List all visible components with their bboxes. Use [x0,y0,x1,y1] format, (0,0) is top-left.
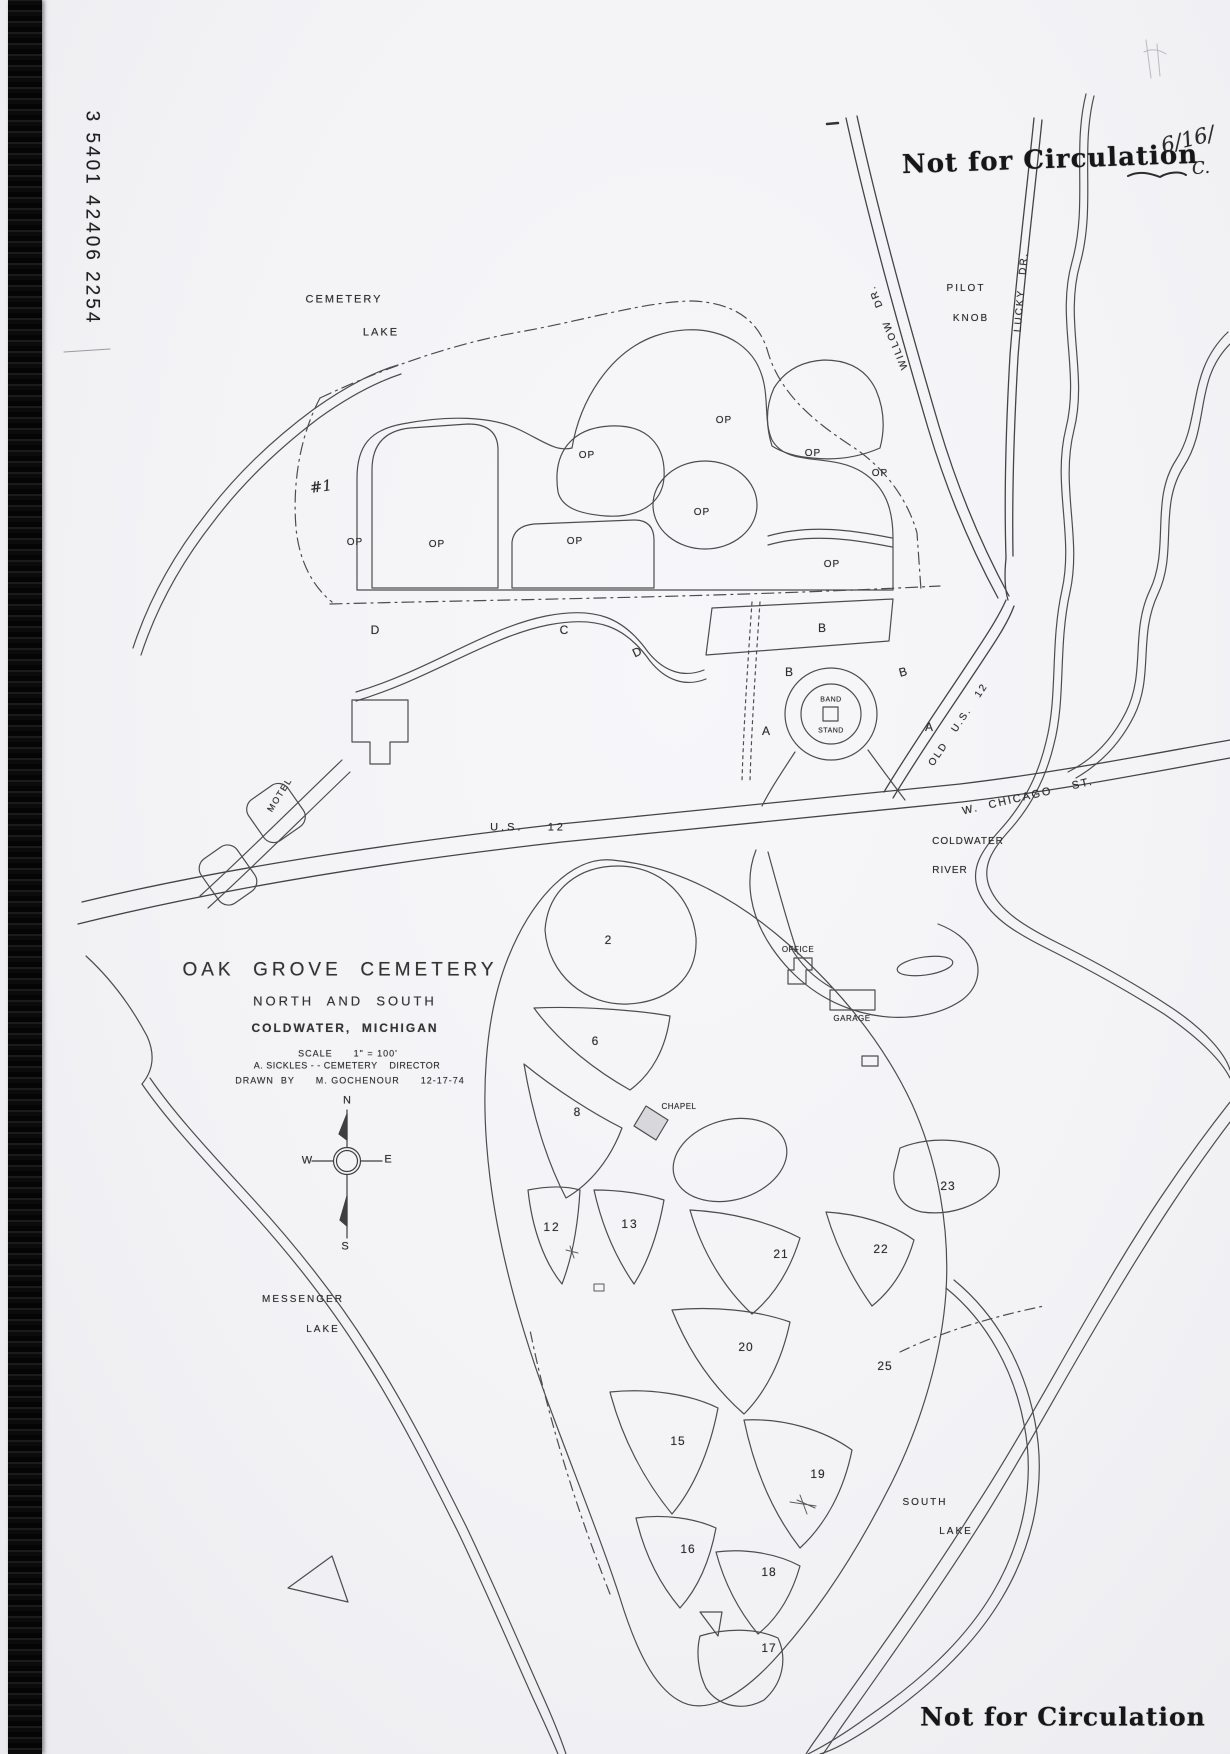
section-22: 22 [873,1243,888,1255]
section-15-outline [610,1391,718,1514]
compass-north-dart [339,1114,347,1140]
map-title: OAK GROVE CEMETERY [182,961,497,980]
south-lake-far-shore [806,1102,1230,1754]
compass-south-dart [340,1196,347,1226]
chapel-building [634,1106,668,1140]
south-lake-shoreline-inner [820,1280,1039,1754]
faint-pencil-marks [1144,40,1166,78]
coldwater-river-east-bank [987,96,1230,1070]
section-b-north: B [818,622,826,634]
section-18-outline [716,1551,800,1634]
section-b-west: B [785,666,793,678]
north-property-line-top [320,301,921,590]
op-block-left [372,424,498,588]
section-op-1: OP [716,416,732,426]
small-square-marker [594,1284,604,1291]
section-a-east: A [925,721,933,733]
a-road-dashed-east [750,602,760,780]
not-for-circulation-stamp-bottom: Not for Circulation [920,1705,1206,1730]
stray-dash [827,123,838,124]
us12-label: U.S. 12 [490,823,566,834]
coldwater-river-label-2: RIVER [932,866,968,876]
chapel-loop-road [663,1106,797,1215]
map-drawn-credit: DRAWN BY M. GOCHENOUR 12-17-74 [235,1077,465,1086]
map-director-credit: A. SICKLES - - CEMETERY DIRECTOR [254,1062,441,1071]
op-area-outer-road [357,330,893,590]
coldwater-river-west-bank [975,94,1230,1078]
section-op-7: OP [429,540,445,550]
section-op-6: OP [347,538,363,548]
compass-outer-circle [334,1148,361,1175]
b-block-parallelogram [706,599,893,655]
section-op-5: OP [694,508,710,518]
band-stand-building [823,707,838,721]
op-block-egg [557,426,664,516]
section-a-west: A [762,725,770,737]
op-block-mid-lower [512,520,654,588]
section-op-9: OP [824,560,840,570]
motel-parking-sliver-1 [194,840,261,909]
op-block-oval [653,461,757,549]
garage-label: GARAGE [833,1015,870,1023]
section-8-outline [524,1064,622,1198]
cemetery-lake-shoreline-inner [141,374,401,655]
chapel-label: CHAPEL [661,1103,696,1111]
map-linework [0,0,1230,1754]
compass-e-label: E [384,1155,391,1166]
old-us12-road-west-edge [884,600,1006,792]
section-19-outline [744,1420,852,1548]
office-label: OFFICE [782,946,814,954]
us12-road-north-edge [82,740,1230,902]
messenger-lake-shoreline-inner [150,1078,566,1754]
compass-s-label: S [341,1242,348,1253]
op-right-road-lower [768,538,892,547]
a-road-dashed-west [742,602,752,780]
section-13: 13 [621,1218,638,1230]
handwritten-initial: C. [1191,160,1210,178]
op-right-road-upper [768,529,892,538]
north-property-line-west [295,398,332,602]
section-15: 15 [670,1435,685,1447]
section-21-outline [690,1210,800,1314]
section-16: 16 [680,1543,695,1555]
compass-n-label: N [343,1096,351,1107]
dc-row-road-lower [356,622,706,701]
section-23-outline [894,1140,1000,1213]
section-2-outline [545,866,696,1004]
band-stand-loop-road [785,668,877,760]
band-stand-label-1: BAND [820,697,841,704]
section-c: C [560,624,569,636]
section-13-outline [594,1190,664,1284]
spine-underline [64,349,110,352]
section-6-outline [534,1007,670,1090]
river-branch-east [1076,344,1230,778]
willow-dr-road-east-edge [857,116,1009,596]
map-scale: SCALE 1" = 100' [298,1050,398,1059]
band-stand-label-2: STAND [818,728,844,735]
grave-scribble-section19 [790,1495,816,1514]
drive-oval-sliver [896,953,954,979]
south-lake-label-1: SOUTH [903,1498,948,1508]
op-block-right-upper [767,360,883,459]
pilot-knob-label-2: KNOB [953,314,989,324]
section-21: 21 [773,1248,788,1260]
section-20: 20 [738,1341,753,1353]
coldwater-river-label-1: COLDWATER [932,837,1004,847]
cemetery-lake-label-1: CEMETERY [306,295,383,306]
messenger-lake-shoreline [142,1084,558,1754]
compass-inner-circle [337,1151,358,1172]
section-12: 12 [543,1221,560,1233]
section-6: 6 [592,1035,599,1047]
west-stream [86,956,152,1084]
compass-rose [312,1110,382,1238]
map-subtitle: NORTH AND SOUTH [253,995,437,1008]
cemetery-lake-label-2: LAKE [363,328,399,339]
section-op-3: OP [805,449,821,459]
section-12-outline [528,1187,580,1284]
south-cemetery-boundary [485,860,947,1706]
messenger-lake-label-1: MESSENGER [262,1295,344,1305]
office-drive-west [768,852,798,954]
section-23: 23 [940,1180,955,1192]
handwritten-number-one: #1 [309,478,333,496]
library-spine-number: 3 5401 42406 2254 [83,111,102,326]
section-17: 17 [761,1642,776,1654]
south-triangle-marker [700,1612,722,1636]
scanned-map-page: 3 5401 42406 2254 Not for Circulation No… [0,0,1230,1754]
section-18: 18 [761,1566,776,1578]
motel-building [352,700,408,764]
cemetery-lake-shoreline [133,365,398,648]
messenger-lake-island [288,1556,348,1602]
section-op-2: OP [579,451,595,461]
section-16-outline [636,1516,716,1608]
section-22-outline [826,1212,914,1306]
section-op-4: OP [872,469,888,479]
section-op-8: OP [567,537,583,547]
section-8: 8 [574,1106,581,1118]
band-stand-circle [801,684,861,744]
pilot-knob-label-1: PILOT [947,284,986,294]
vault-building [862,1056,878,1066]
old-us12-road-east-edge [893,606,1014,798]
section-25: 25 [877,1360,892,1372]
stamp-scribble [1128,173,1186,177]
section-2: 2 [605,934,612,946]
map-city: COLDWATER, MICHIGAN [251,1022,438,1034]
messenger-lake-label-2: LAKE [306,1325,340,1335]
south-lake-shoreline [808,1288,1028,1754]
south-lake-label-2: LAKE [939,1527,973,1537]
band-loop-sw-connector [762,752,795,806]
section-d-west: D [371,624,380,636]
compass-w-label: W [302,1156,312,1167]
section-19: 19 [810,1468,825,1480]
dc-row-road-upper [356,613,704,692]
